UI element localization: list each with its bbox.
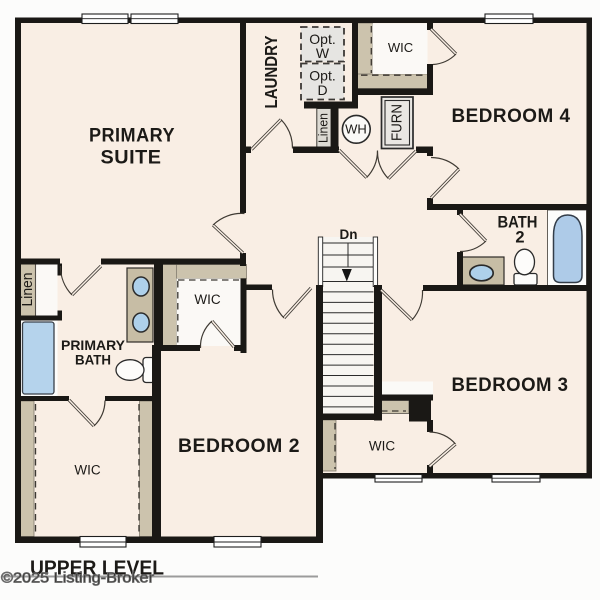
- svg-text:BEDROOM 2: BEDROOM 2: [178, 436, 300, 457]
- svg-text:FURN: FURN: [389, 104, 406, 141]
- svg-text:BEDROOM 4: BEDROOM 4: [452, 106, 571, 127]
- svg-text:WH: WH: [345, 122, 367, 137]
- svg-text:BATH: BATH: [75, 352, 111, 368]
- svg-text:Linen: Linen: [19, 273, 36, 307]
- svg-text:LAUNDRY: LAUNDRY: [261, 35, 281, 108]
- svg-text:Dn: Dn: [340, 227, 358, 242]
- svg-text:©2025 Listing-Broker: ©2025 Listing-Broker: [1, 570, 154, 587]
- svg-text:2: 2: [515, 229, 524, 247]
- svg-text:PRIMARY: PRIMARY: [89, 126, 175, 147]
- svg-text:WIC: WIC: [388, 40, 413, 55]
- svg-text:SUITE: SUITE: [101, 148, 162, 169]
- svg-text:WIC: WIC: [369, 439, 395, 454]
- svg-text:WIC: WIC: [194, 292, 220, 307]
- svg-text:BEDROOM 3: BEDROOM 3: [452, 375, 569, 396]
- svg-text:WIC: WIC: [74, 463, 100, 478]
- svg-text:W: W: [316, 45, 330, 61]
- svg-text:D: D: [317, 82, 327, 98]
- svg-text:Linen: Linen: [317, 113, 331, 143]
